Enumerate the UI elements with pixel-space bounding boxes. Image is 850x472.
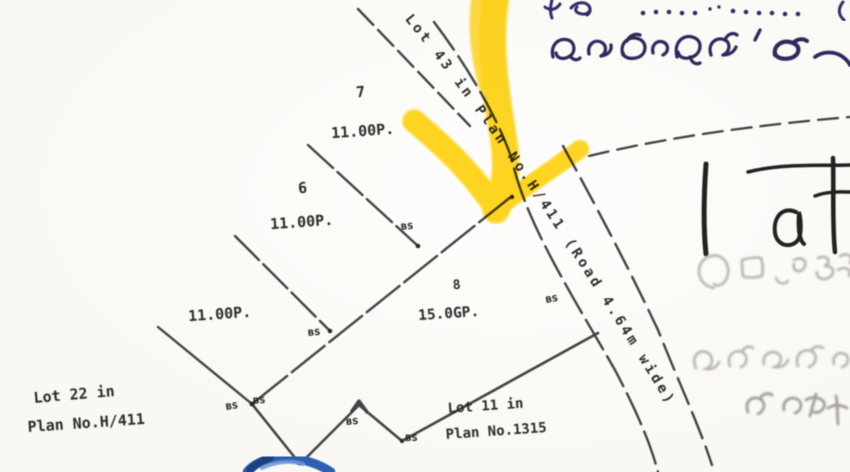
highlight-arrow (414, 0, 580, 210)
lot22-label-line1: Lot 22 in (33, 382, 116, 407)
arrow-shaft-upper-fill (478, 0, 487, 88)
plot7-area: 11.00P. (330, 120, 394, 142)
survey-plan-canvas: Lot 43 in Plan No.H/411 (Road 4.64m wide… (0, 0, 850, 472)
scanned-survey-plan: Lot 43 in Plan No.H/411 (Road 4.64m wide… (0, 0, 850, 472)
plot8-area: 15.0GP. (418, 304, 480, 324)
road-lot-label: Lot 43 in Plan No.H/411 (Road 4.64m wide… (401, 11, 678, 408)
lot11-label-line2: Plan No.1315 (445, 420, 547, 443)
faint-stamp-row-1 (699, 255, 850, 288)
plot6-area: 11.00P. (269, 211, 333, 233)
plot5-area: 11.00P. (187, 303, 251, 325)
lot22-label-line2: Plan No.H/411 (27, 410, 145, 436)
arrow-left-barb (414, 121, 492, 203)
svg-text:BS: BS (545, 294, 559, 306)
svg-text:BS: BS (345, 417, 358, 428)
faint-stamp-row-3 (747, 394, 847, 424)
svg-text:BS: BS (225, 401, 239, 413)
arrow-shaft (492, 0, 505, 210)
dotted-line (641, 5, 801, 16)
svg-text:BS: BS (400, 222, 414, 233)
faint-stamp-row-2 (694, 346, 848, 369)
side-note-handwriting (704, 158, 850, 254)
lot11-label-line1: Lot 11 in (447, 396, 524, 417)
svg-text:BS: BS (307, 328, 321, 339)
plot8-number: 8 (452, 278, 461, 294)
svg-text:BS: BS (405, 434, 418, 444)
svg-text:BS: BS (252, 396, 265, 407)
plot6-number: 6 (297, 179, 308, 198)
boundary-line-5-lot22 (158, 327, 252, 404)
sinhala-handwriting-second-line (552, 30, 850, 65)
blue-pen-mark (247, 458, 331, 472)
boundary-line-northeast (589, 117, 850, 156)
sinhala-handwriting-top (545, 0, 844, 20)
plot7-number: 7 (355, 83, 366, 102)
southern-zigzag-boundary (252, 333, 598, 464)
